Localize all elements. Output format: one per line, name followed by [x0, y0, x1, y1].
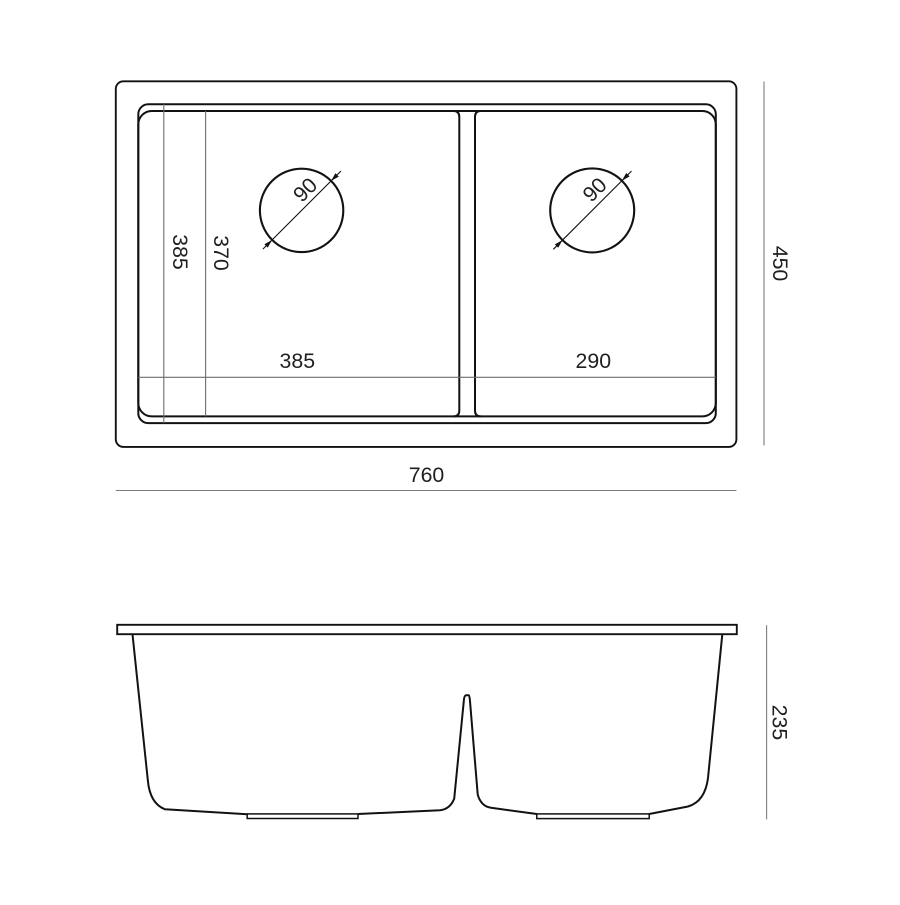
svg-text:90: 90: [288, 173, 322, 207]
svg-text:760: 760: [409, 463, 445, 487]
svg-text:385: 385: [280, 349, 316, 373]
svg-text:450: 450: [768, 246, 792, 282]
svg-text:290: 290: [576, 349, 612, 373]
svg-text:370: 370: [209, 235, 233, 271]
svg-text:385: 385: [168, 234, 192, 270]
svg-text:90: 90: [578, 173, 612, 207]
svg-text:235: 235: [767, 705, 791, 741]
